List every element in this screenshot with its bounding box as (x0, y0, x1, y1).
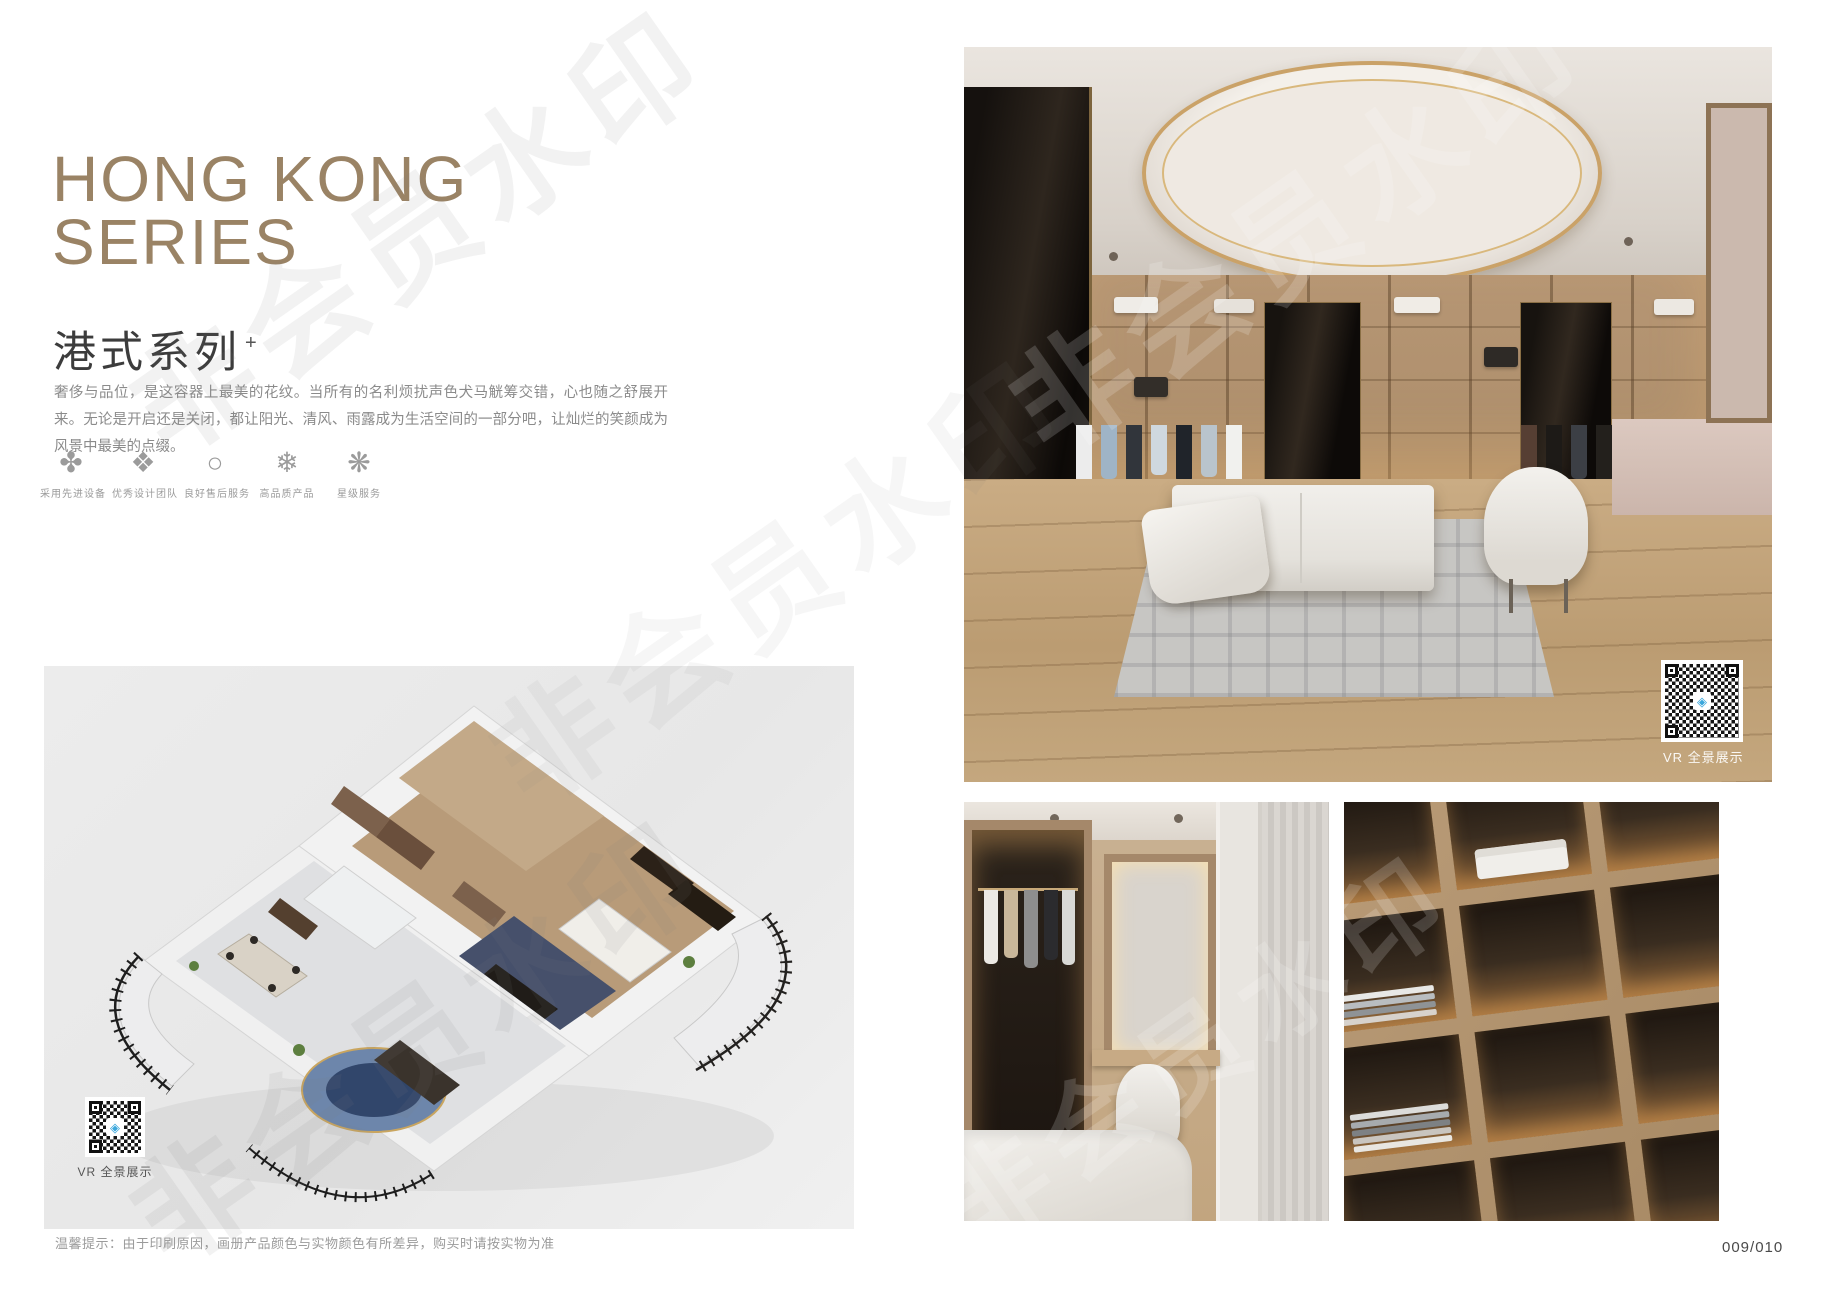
feature-item: ○ 良好售后服务 (184, 448, 246, 500)
page-number: 009/010 (1722, 1239, 1783, 1256)
vr-panorama-label: VR 全景展示 (1663, 747, 1772, 766)
shelf-cell (1443, 802, 1592, 890)
spotlight (1624, 237, 1633, 246)
pinwheel-icon: ✤ (40, 448, 102, 478)
series-subtitle: 港式系列+ (53, 318, 261, 380)
qr-finder-icon (128, 1101, 141, 1114)
snowflake-icon: ❄ (256, 448, 318, 478)
handbag (1484, 347, 1518, 367)
shelf-cell (1344, 908, 1456, 1035)
vanity-chair (1484, 467, 1588, 585)
shelf-cell (1474, 1016, 1623, 1143)
feature-label: 优秀设计团队 (112, 485, 174, 500)
shelf-cell (1459, 890, 1608, 1017)
draped-blanket (1140, 495, 1272, 607)
footer-disclaimer: 温馨提示：由于印刷原因，画册产品颜色与实物颜色有所差异，购买时请按实物为准 (55, 1233, 555, 1252)
qr-finder-icon (1665, 725, 1678, 738)
feature-item: ❖ 优秀设计团队 (112, 448, 174, 500)
vr-cube-icon: ◈ (106, 1118, 124, 1136)
vr-panorama-label: VR 全景展示 (55, 1163, 175, 1180)
shelf-cell (1344, 1160, 1487, 1221)
isometric-floorplan-render (44, 666, 854, 1229)
adjacent-room (1262, 802, 1329, 1221)
photo-walk-in-closet: ◈ VR 全景展示 (964, 47, 1772, 782)
bed-bench (1172, 485, 1434, 591)
folded-linens (1394, 297, 1440, 313)
shelf-cell (1641, 1123, 1719, 1221)
vanity-desk (1092, 1050, 1220, 1066)
wardrobe-shelf-grid (1344, 802, 1719, 1221)
folded-linens (1214, 299, 1254, 313)
shelf-cell (1610, 871, 1719, 998)
title-line-2: SERIES (52, 211, 468, 274)
qr-code-floorplan: ◈ (85, 1097, 145, 1157)
vanity-mirror (1104, 854, 1216, 1062)
shelf-cell (1490, 1142, 1639, 1221)
feature-item: ✤ 采用先进设备 (40, 448, 102, 500)
photo-dressing-area (964, 802, 1329, 1221)
tall-mirror (1706, 103, 1772, 423)
feature-label: 良好售后服务 (184, 485, 246, 500)
floorplan-panel: ◈ VR 全景展示 (44, 666, 854, 1229)
ring-icon: ○ (184, 448, 246, 478)
qr-finder-icon (89, 1101, 102, 1114)
shelf-cell (1595, 802, 1719, 872)
photo-shelf-detail (1344, 802, 1719, 1221)
feature-label: 高品质产品 (256, 485, 318, 500)
storage-box (1474, 839, 1570, 880)
page-title: HONG KONG SERIES (52, 148, 468, 274)
qr-code-closet: ◈ (1661, 660, 1743, 742)
spotlight (1109, 252, 1118, 261)
folded-linens (1114, 297, 1158, 313)
folded-clothes-stack (1350, 1103, 1452, 1153)
handbag (1134, 377, 1168, 397)
qr-modules: ◈ (1665, 664, 1739, 738)
shelf-cell (1344, 802, 1441, 909)
folded-clothes-stack (1344, 985, 1437, 1027)
qr-finder-icon (1726, 664, 1739, 677)
white-pillar (1216, 802, 1262, 1221)
ceiling-ring (1142, 61, 1602, 285)
shelf-cell (1344, 1034, 1472, 1161)
feature-list: ✤ 采用先进设备 ❖ 优秀设计团队 ○ 良好售后服务 ❄ 高品质产品 ❋ 星级服… (40, 448, 390, 500)
shelf-cell (1626, 997, 1719, 1124)
diamond-ornament-icon: ❖ (112, 448, 174, 478)
subtitle-text: 港式系列 (53, 329, 241, 377)
bed-with-blanket (964, 1130, 1192, 1221)
vr-cube-icon: ◈ (1693, 692, 1711, 710)
star-ornament-icon: ❋ (328, 448, 390, 478)
plus-mark: + (245, 332, 261, 354)
spotlight (1174, 814, 1183, 823)
title-line-1: HONG KONG (52, 148, 468, 211)
qr-modules: ◈ (89, 1101, 141, 1153)
qr-finder-icon (1665, 664, 1678, 677)
storage-box (1654, 299, 1694, 315)
feature-item: ❄ 高品质产品 (256, 448, 318, 500)
feature-label: 采用先进设备 (40, 485, 102, 500)
feature-item: ❋ 星级服务 (328, 448, 390, 500)
dressing-table (1612, 419, 1772, 515)
qr-finder-icon (89, 1140, 102, 1153)
feature-label: 星级服务 (328, 485, 390, 500)
